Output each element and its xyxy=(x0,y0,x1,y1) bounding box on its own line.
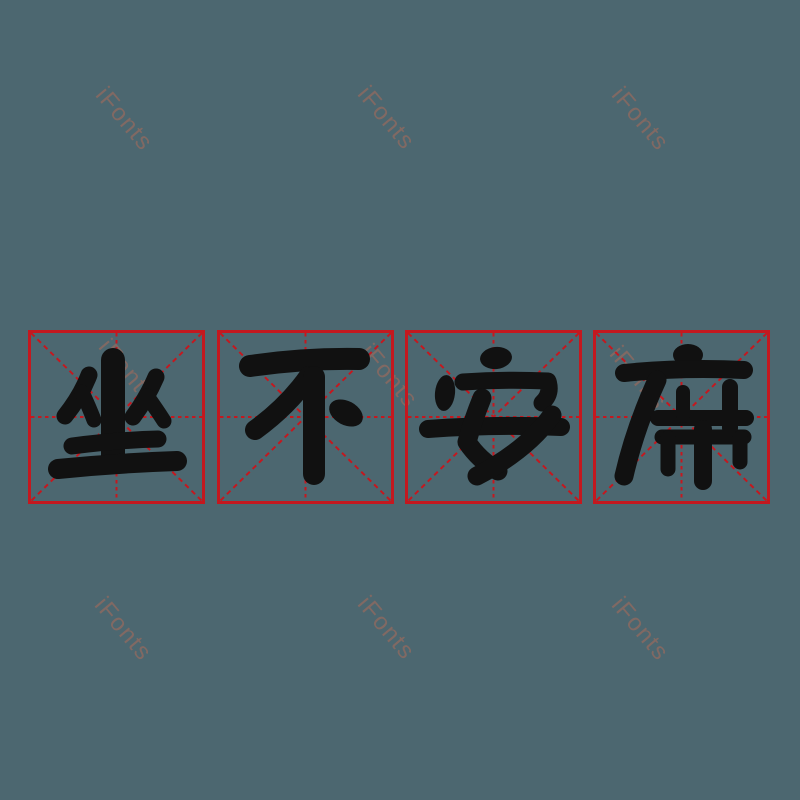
char-text: 坐 xyxy=(28,504,29,505)
char-text: 不 xyxy=(217,504,218,505)
char-box-bu: 不 xyxy=(217,330,394,504)
mizige-grid xyxy=(593,330,770,504)
char-box-zuo: 坐 xyxy=(28,330,205,504)
char-box-xi: 席 xyxy=(593,330,770,504)
char-text: 安 xyxy=(405,504,406,505)
mizige-grid xyxy=(28,330,205,504)
glyph-bu xyxy=(250,359,368,474)
watermark-text: iFonts xyxy=(605,591,682,675)
watermark-text: iFonts xyxy=(89,81,166,165)
char-text: 席 xyxy=(593,504,594,505)
watermark-text: iFonts xyxy=(605,81,682,165)
glyph-zuo xyxy=(58,360,177,469)
watermark-text: iFonts xyxy=(88,591,165,675)
font-preview-canvas: iFonts iFonts iFonts iFonts iFonts iFont… xyxy=(0,0,800,800)
glyph-xi xyxy=(624,344,746,481)
mizige-grid xyxy=(217,330,394,504)
watermark-text: iFonts xyxy=(351,590,428,674)
char-box-an: 安 xyxy=(405,330,582,504)
watermark-text: iFonts xyxy=(351,80,428,164)
mizige-grid xyxy=(405,330,582,504)
